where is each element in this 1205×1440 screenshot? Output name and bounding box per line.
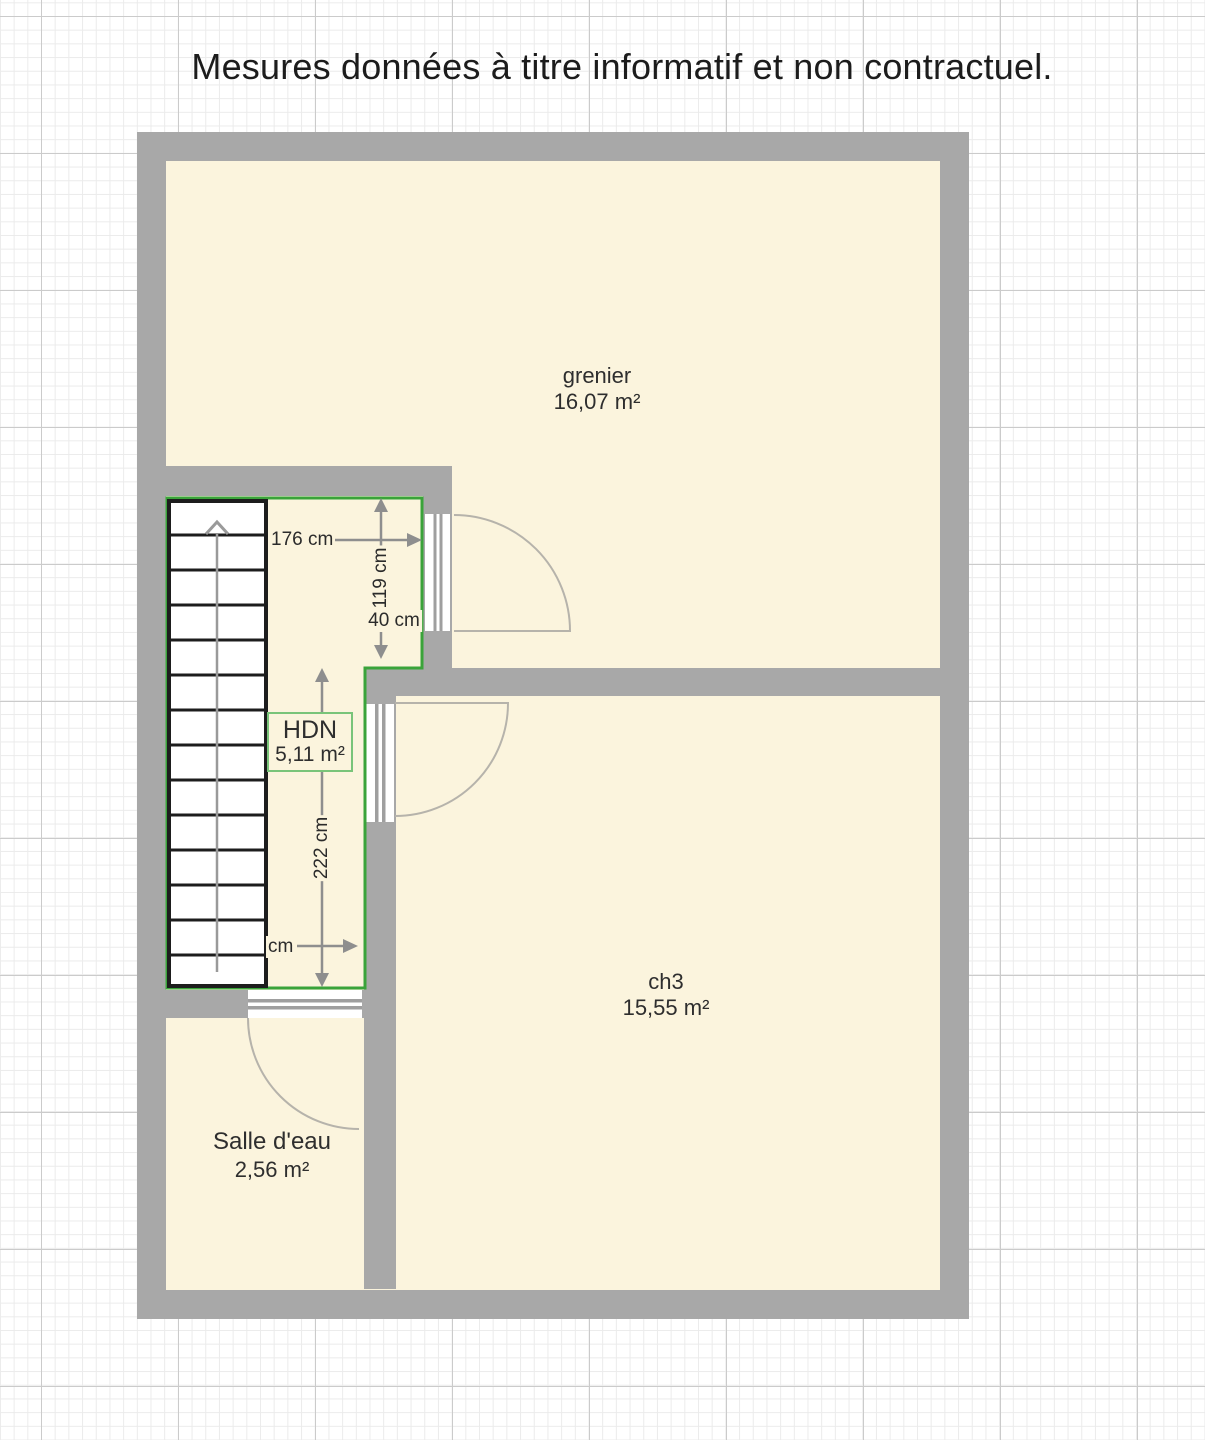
room-area: 15,55 m² [623, 995, 710, 1021]
wall-grenier-left-bottom [166, 466, 452, 496]
door-opening-salle-deau [248, 990, 362, 1018]
dimension-label-40cm: 40 cm [366, 610, 422, 632]
wall-grenier-ch3 [364, 668, 940, 696]
room-label-hdn: HDN 5,11 m² [267, 712, 353, 772]
room-name: Salle d'eau [213, 1128, 331, 1156]
room-area: 16,07 m² [554, 389, 641, 415]
room-label-ch3: ch3 15,55 m² [623, 969, 710, 1021]
room-area: 2,56 m² [213, 1156, 331, 1184]
dimension-label-176cm: 176 cm [269, 529, 335, 551]
room-name: grenier [554, 363, 641, 389]
floor-plan-page: Mesures données à titre informatif et no… [0, 0, 1205, 1440]
room-label-grenier: grenier 16,07 m² [554, 363, 641, 415]
room-area: 5,11 m² [275, 743, 345, 766]
door-opening-ch3 [366, 704, 394, 822]
dimension-label-119cm: 119 cm [370, 546, 392, 611]
door-opening-grenier [425, 514, 450, 631]
room-label-salle-deau: Salle d'eau 2,56 m² [213, 1128, 331, 1184]
room-name: ch3 [623, 969, 710, 995]
room-name: HDN [283, 718, 337, 743]
page-title: Mesures données à titre informatif et no… [191, 46, 1052, 88]
dimension-label-cm: cm [266, 936, 295, 958]
dimension-label-222cm: 222 cm [311, 815, 333, 881]
